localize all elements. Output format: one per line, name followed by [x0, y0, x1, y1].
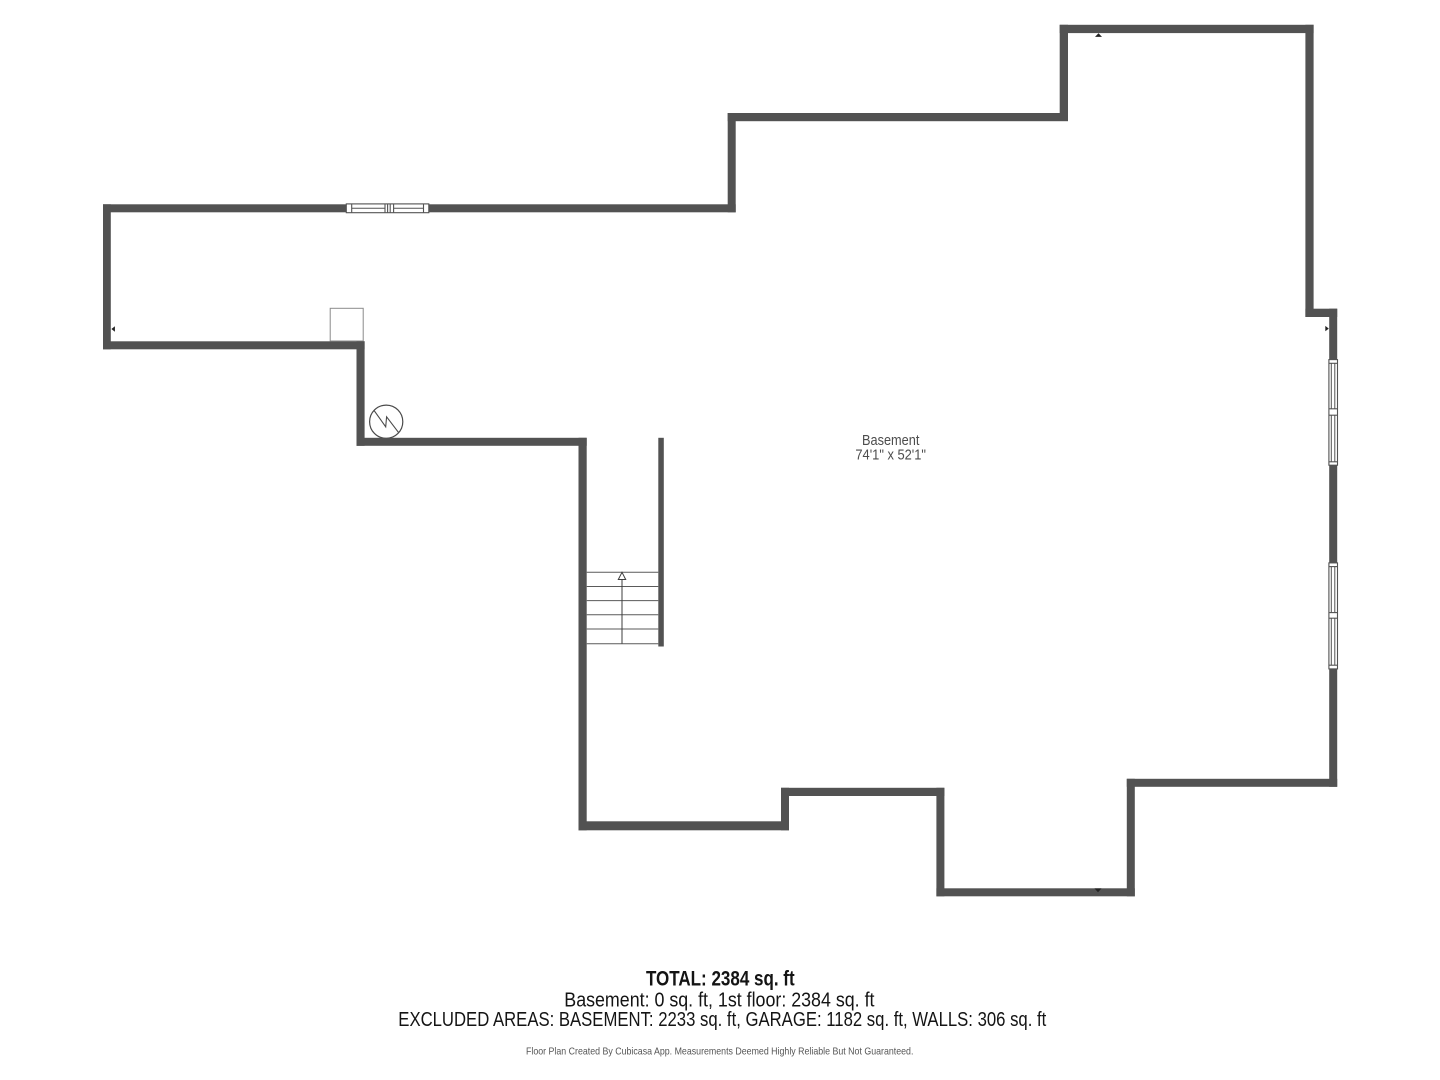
svg-text:TOTAL: 2384 sq. ft: TOTAL: 2384 sq. ft: [646, 967, 795, 990]
svg-text:EXCLUDED AREAS: BASEMENT: 2233: EXCLUDED AREAS: BASEMENT: 2233 sq. ft, G…: [398, 1009, 1046, 1031]
svg-text:Floor Plan Created By Cubicasa: Floor Plan Created By Cubicasa App. Meas…: [526, 1046, 913, 1057]
svg-text:74'1" x 52'1": 74'1" x 52'1": [855, 447, 926, 463]
